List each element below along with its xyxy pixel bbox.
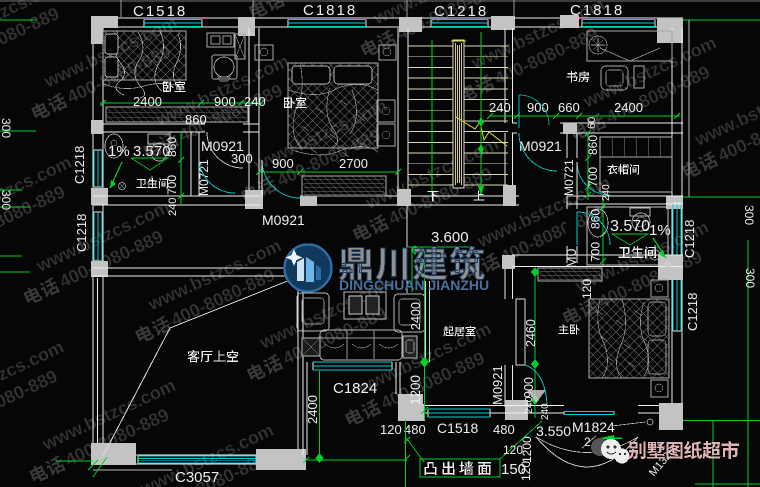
svg-text:120: 120 — [503, 443, 523, 457]
svg-text:660: 660 — [558, 100, 580, 115]
svg-text:240: 240 — [601, 184, 612, 201]
svg-text:60: 60 — [586, 117, 598, 129]
svg-text:2700: 2700 — [339, 156, 368, 171]
svg-text:M0721: M0721 — [562, 159, 576, 196]
svg-text:1200: 1200 — [408, 375, 423, 405]
svg-text:DINGCHUAN JIANZHU: DINGCHUAN JIANZHU — [339, 277, 489, 293]
svg-text:3.550: 3.550 — [536, 423, 571, 439]
svg-text:480: 480 — [404, 422, 426, 437]
svg-text:900: 900 — [527, 100, 549, 115]
svg-text:120: 120 — [519, 461, 533, 481]
svg-text:300: 300 — [742, 205, 756, 225]
svg-text:900: 900 — [272, 156, 294, 171]
svg-text:C1518: C1518 — [133, 3, 187, 20]
svg-text:2400: 2400 — [133, 94, 162, 109]
svg-text:300: 300 — [743, 268, 757, 288]
svg-text:2400: 2400 — [305, 395, 320, 424]
svg-text:3.600: 3.600 — [431, 229, 469, 246]
svg-text:C1218: C1218 — [682, 220, 697, 258]
svg-text:3.570: 3.570 — [610, 218, 650, 235]
svg-text:860: 860 — [165, 137, 179, 157]
svg-text:480: 480 — [493, 422, 515, 437]
svg-text:C1818: C1818 — [303, 2, 357, 19]
svg-text:900: 900 — [214, 94, 236, 109]
svg-text:C1218: C1218 — [685, 293, 700, 331]
svg-text:C3057: C3057 — [175, 469, 219, 486]
svg-text:700: 700 — [589, 242, 603, 262]
svg-text:C1824: C1824 — [333, 380, 377, 397]
svg-text:2400: 2400 — [409, 302, 423, 330]
svg-text:C1818: C1818 — [570, 2, 624, 19]
svg-text:C1518: C1518 — [437, 420, 478, 436]
svg-text:860: 860 — [589, 209, 603, 229]
svg-text:C1218: C1218 — [434, 3, 488, 20]
svg-text:240: 240 — [540, 403, 551, 420]
svg-text:240: 240 — [523, 396, 535, 414]
svg-text:300: 300 — [0, 118, 13, 138]
svg-text:2400: 2400 — [614, 100, 643, 115]
svg-text:300: 300 — [0, 190, 13, 210]
svg-text:M0921: M0921 — [262, 212, 305, 228]
svg-text:C1218: C1218 — [72, 146, 87, 184]
svg-text:M0921: M0921 — [519, 138, 562, 154]
svg-text:M0921: M0921 — [490, 365, 505, 405]
svg-text:860: 860 — [586, 135, 600, 155]
svg-text:300: 300 — [231, 151, 253, 166]
svg-text:860: 860 — [185, 112, 207, 127]
svg-text:2: 2 — [584, 435, 591, 449]
svg-text:C1218: C1218 — [74, 214, 89, 252]
svg-text:2460: 2460 — [524, 319, 538, 347]
svg-text:120: 120 — [580, 279, 594, 299]
svg-text:M1824: M1824 — [572, 419, 615, 435]
svg-text:1%: 1% — [649, 222, 671, 239]
svg-text:700: 700 — [165, 175, 179, 195]
svg-text:240: 240 — [167, 198, 179, 216]
svg-text:240: 240 — [244, 94, 266, 109]
svg-text:240: 240 — [489, 100, 511, 115]
svg-text:1%: 1% — [108, 143, 130, 160]
svg-text:120: 120 — [380, 422, 402, 437]
svg-text:700: 700 — [586, 167, 600, 187]
